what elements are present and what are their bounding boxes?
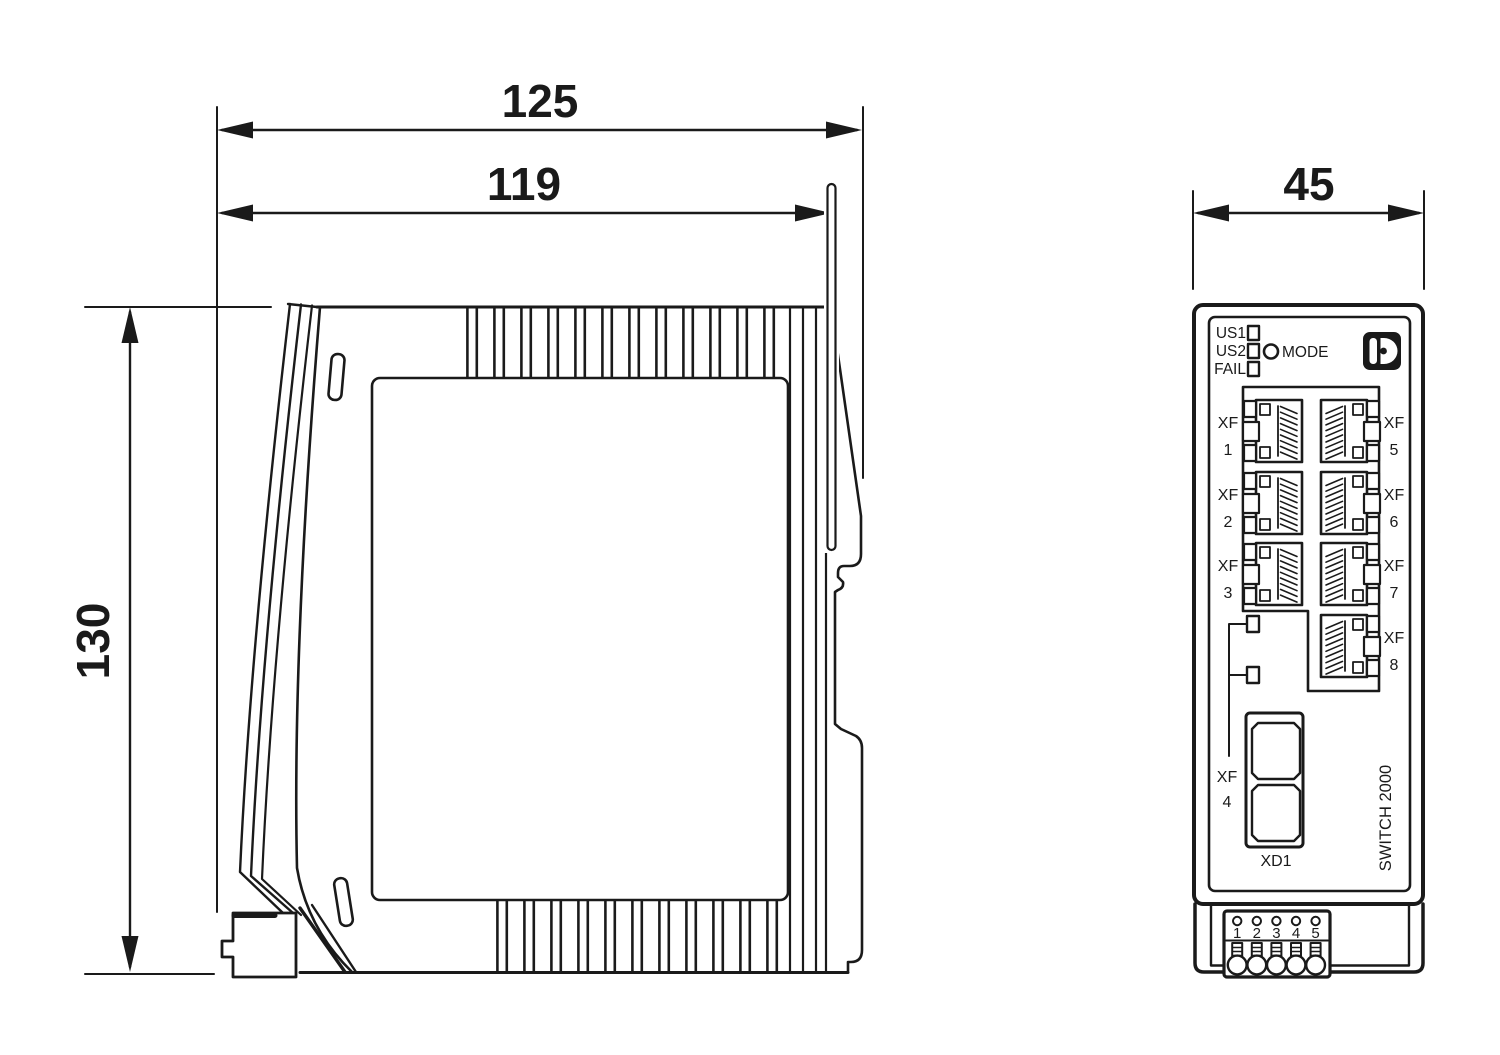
- drawing-svg: 125 119 130: [0, 0, 1500, 1055]
- terminal-number-1: 1: [1233, 925, 1241, 942]
- port-label-xf7: XF: [1384, 558, 1405, 575]
- terminal-number-3: 3: [1272, 925, 1280, 942]
- port-number-xf2: 2: [1224, 514, 1233, 531]
- phoenix-contact-logo-icon: [1363, 332, 1401, 370]
- port-label-xf1: XF: [1218, 415, 1239, 432]
- vent-slats-top: [465, 309, 788, 378]
- port-label-xf5: XF: [1384, 415, 1405, 432]
- xd1-label: XD1: [1260, 853, 1291, 870]
- combo-port-xd1: XD1: [1246, 713, 1303, 870]
- port-label-xf6: XF: [1384, 487, 1405, 504]
- terminal-number-2: 2: [1253, 925, 1261, 942]
- led-us2-icon: [1248, 344, 1259, 358]
- xd1-slot-bottom: [1252, 785, 1300, 841]
- led-fail-label: FAIL: [1214, 361, 1246, 378]
- port-xf3: [1243, 543, 1302, 605]
- port-number-xf7: 7: [1390, 585, 1399, 602]
- bezel-slot-top: [328, 354, 345, 401]
- mode-button-icon: [1264, 345, 1278, 359]
- port-number-xf8: 8: [1390, 657, 1399, 674]
- port-xf6: [1321, 472, 1380, 534]
- xf4-led-icon: [1247, 616, 1259, 632]
- port-label-xf2: XF: [1218, 487, 1239, 504]
- port-xf1: [1243, 400, 1302, 462]
- din-rail-blade: [824, 181, 839, 553]
- led-us1-label: US1: [1216, 325, 1246, 342]
- led-us1-icon: [1248, 326, 1259, 340]
- port-number-xf4: 4: [1223, 794, 1232, 811]
- terminal-number-5: 5: [1311, 925, 1319, 942]
- vent-slats-bottom: [495, 901, 788, 971]
- dim-width-label: 45: [1283, 158, 1334, 210]
- mode-label: MODE: [1282, 344, 1329, 361]
- led-fail-icon: [1248, 362, 1259, 376]
- din-latch-foot: [222, 913, 296, 977]
- dimensional-drawing: 125 119 130: [0, 0, 1500, 1055]
- terminal-number-4: 4: [1292, 925, 1300, 942]
- port-xf5: [1321, 400, 1380, 462]
- port-xf2: [1243, 472, 1302, 534]
- xf4-led-icon: [1247, 667, 1259, 683]
- dim-body-width-label: 119: [487, 158, 561, 210]
- port-xf8: [1321, 615, 1380, 677]
- port-number-xf6: 6: [1390, 514, 1399, 531]
- label-area: [372, 378, 788, 900]
- model-label: SWITCH 2000: [1377, 765, 1395, 871]
- port-label-xf3: XF: [1218, 558, 1239, 575]
- led-us2-label: US2: [1216, 343, 1246, 360]
- port-number-xf1: 1: [1224, 442, 1233, 459]
- dim-overall-width-label: 125: [502, 75, 579, 127]
- port-label-xf8: XF: [1384, 630, 1405, 647]
- port-label-xf4: XF: [1217, 769, 1238, 786]
- terminal-block: 1 2 3 4 5: [1224, 911, 1330, 977]
- port-number-xf3: 3: [1224, 585, 1233, 602]
- xd1-slot-top: [1252, 723, 1300, 779]
- dim-height-label: 130: [67, 603, 119, 680]
- port-xf7: [1321, 543, 1380, 605]
- port-number-xf5: 5: [1390, 442, 1399, 459]
